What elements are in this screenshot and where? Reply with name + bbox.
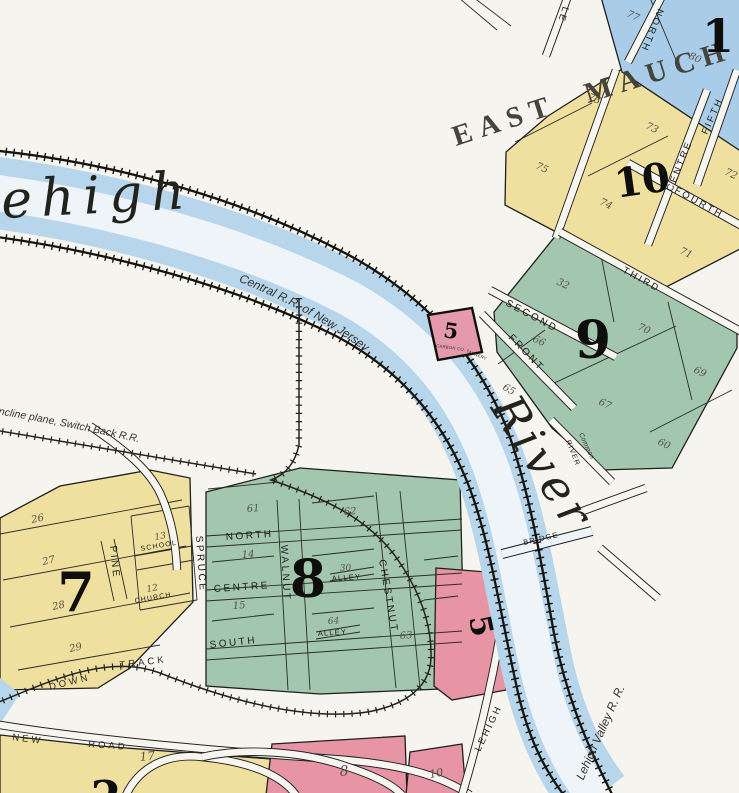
sanborn-map-page: EAST MAUCH Lehigh River Central R.R. of … xyxy=(0,0,739,793)
partial-block-number: 2 xyxy=(91,772,122,793)
block-7-number: 7 xyxy=(57,560,95,624)
block-11-number: 11 xyxy=(702,9,739,63)
map-canvas: EAST MAUCH Lehigh River Central R.R. of … xyxy=(0,0,739,793)
block-9-number: 9 xyxy=(575,310,611,371)
lot-63: 63 xyxy=(399,630,412,642)
block-8-south-number: 8 xyxy=(339,763,349,780)
block-8-number: 8 xyxy=(290,549,326,610)
lot-62: 62 xyxy=(343,506,356,518)
lot-15: 15 xyxy=(232,600,245,612)
lot-14: 14 xyxy=(241,549,254,561)
block-17-number: 17 xyxy=(139,749,156,764)
lot-64: 64 xyxy=(328,616,340,627)
lot-61: 61 xyxy=(246,503,259,515)
lot-10: 10 xyxy=(428,766,444,781)
block-10-number: 10 xyxy=(611,153,673,207)
